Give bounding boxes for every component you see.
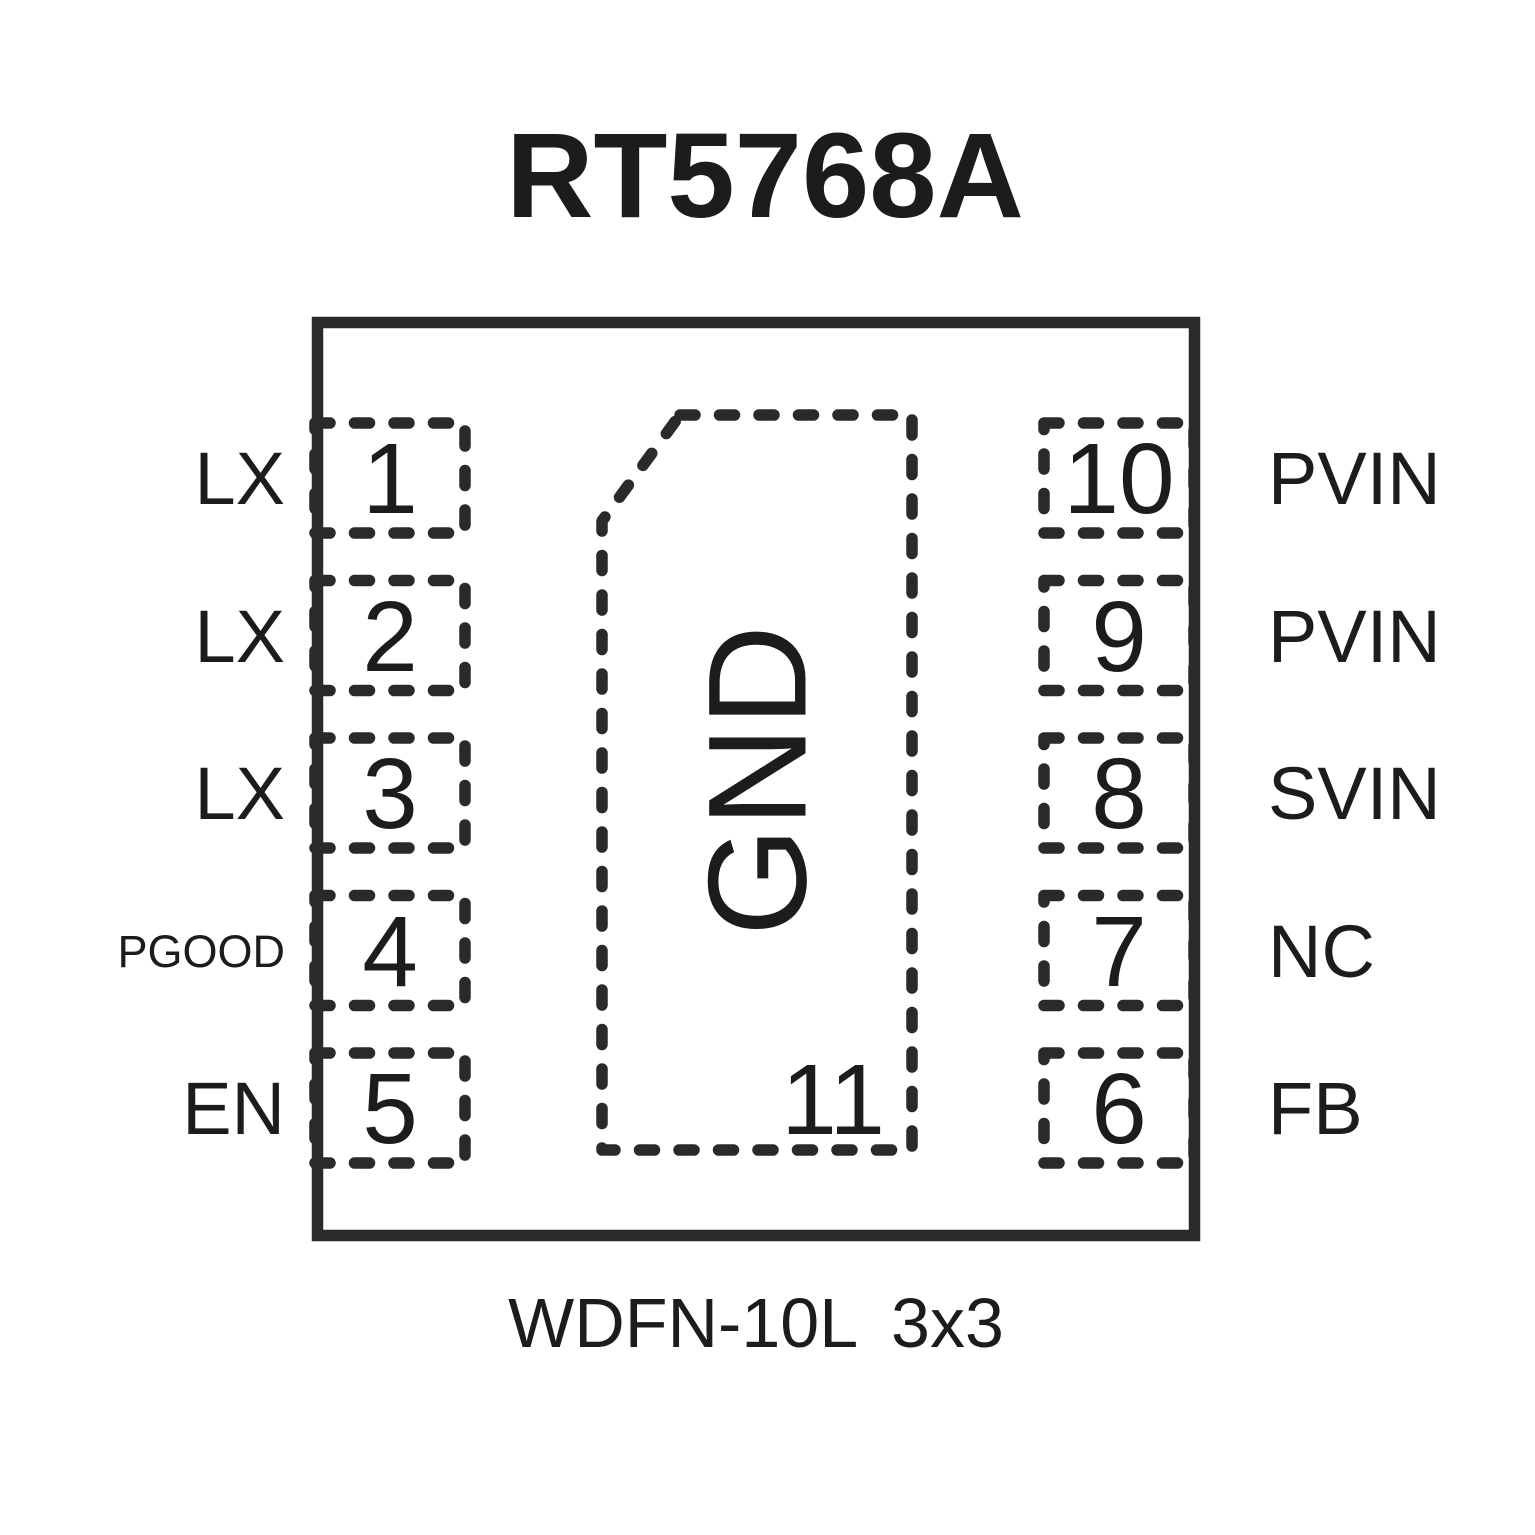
- pin-number-1: 1: [315, 423, 465, 533]
- pin-label-lx-2: LX: [60, 581, 285, 691]
- thermal-pad-label: GND: [685, 530, 830, 1030]
- pin-label-nc: NC: [1268, 896, 1535, 1006]
- pin-number-3: 3: [315, 738, 465, 848]
- pin-label-pgood: PGOOD: [60, 896, 285, 1006]
- pin-number-8: 8: [1044, 738, 1194, 848]
- pinout-diagram-page: RT5768A 1 2 3 4 5 10 9 8 7 6 LX LX LX PG…: [0, 0, 1535, 1535]
- pin-number-6: 6: [1044, 1053, 1194, 1163]
- pin-number-9: 9: [1044, 581, 1194, 691]
- pin-label-lx-1: LX: [60, 423, 285, 533]
- pin-number-5: 5: [315, 1053, 465, 1163]
- pin-label-lx-3: LX: [60, 738, 285, 848]
- pin-label-svin: SVIN: [1268, 738, 1535, 848]
- pin-label-pvin-10: PVIN: [1268, 423, 1535, 533]
- package-caption: WDFN-10L 3x3: [0, 1268, 1512, 1378]
- pin-number-7: 7: [1044, 896, 1194, 1006]
- pin-label-fb: FB: [1268, 1053, 1535, 1163]
- pin-label-pvin-9: PVIN: [1268, 581, 1535, 691]
- pin-number-11: 11: [585, 1048, 885, 1153]
- pin-number-10: 10: [1044, 423, 1194, 533]
- pin-number-2: 2: [315, 581, 465, 691]
- pin-number-4: 4: [315, 896, 465, 1006]
- pin-label-en: EN: [60, 1053, 285, 1163]
